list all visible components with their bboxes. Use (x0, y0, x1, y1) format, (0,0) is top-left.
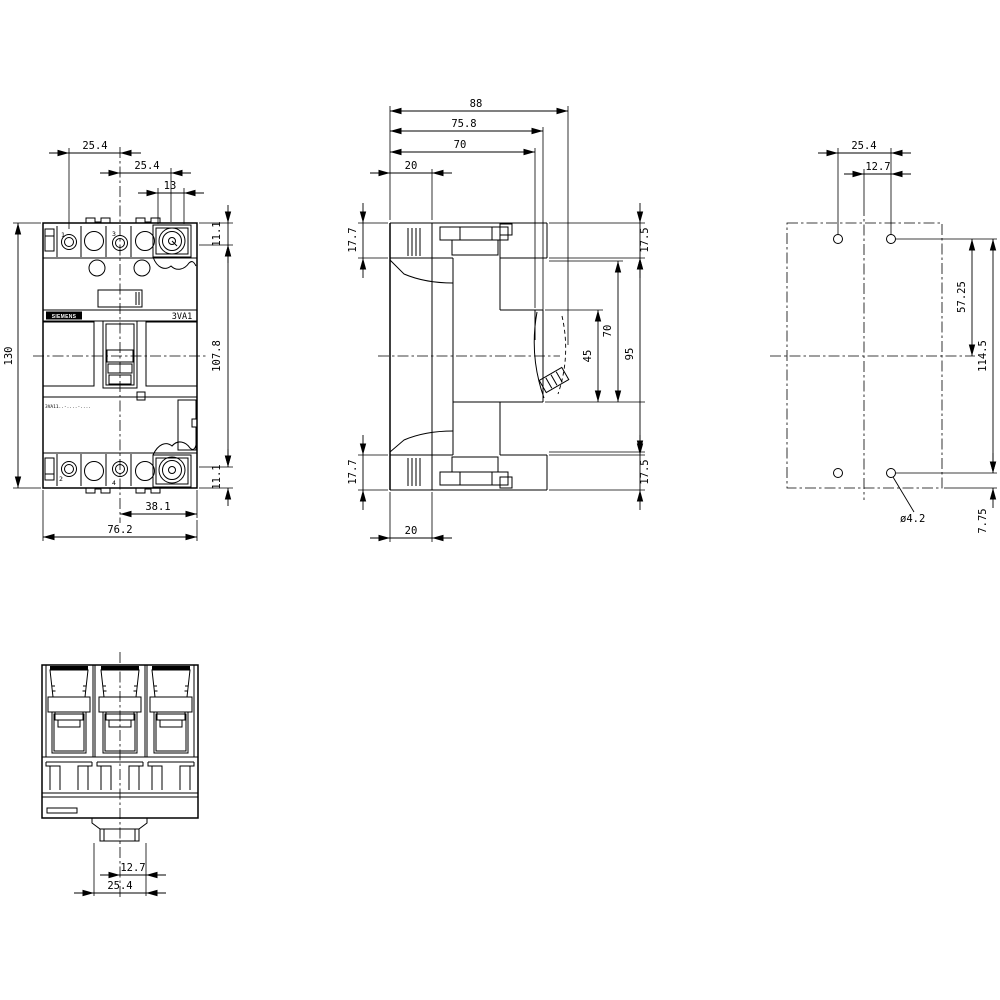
terminal-number-4: 4 (112, 479, 116, 487)
dim-front-total-width: 76.2 (107, 524, 132, 536)
box-terminal-top (153, 225, 196, 269)
box-terminal-bottom (153, 442, 196, 487)
dim-side-front-step-bottom: 17.5 (639, 459, 651, 484)
mounting-foot (92, 818, 147, 841)
dim-drill-hole-pitch-vertical: 114.5 (977, 340, 989, 372)
dim-side-rail-height-bottom: 17.7 (347, 459, 359, 484)
dim-drill-hole-to-edge: 7.75 (977, 508, 989, 533)
front-view-dimensions: 25.4 25.4 13 11.1 130 107.8 11. (3, 140, 233, 541)
clamp-hole (85, 462, 104, 481)
dim-side-rail-height-top: 17.7 (347, 227, 359, 252)
dim-front-terminal-height-bottom: 11.1 (211, 464, 223, 489)
dim-bottom-foot-width: 25.4 (107, 880, 132, 892)
dim-front-total-height: 130 (3, 347, 15, 366)
terminal-number-2: 2 (59, 475, 63, 483)
dim-side-base-depth-bottom: 20 (405, 525, 418, 537)
dim-side-handle-window: 45 (582, 350, 594, 363)
clamp-hole (85, 232, 104, 251)
dimensional-drawing: SIEMENS 3VA1 3VA11..-....-.... 1 3 2 4 (0, 0, 1000, 1000)
dim-side-front-body-height: 95 (624, 348, 636, 361)
dim-side-depth-recess: 70 (454, 139, 467, 151)
side-view: 88 75.8 70 20 17.7 17.5 45 (347, 98, 651, 542)
dim-side-base-depth-top: 20 (405, 160, 418, 172)
dim-side-depth-escutcheon: 75.8 (451, 118, 476, 130)
dim-front-cover-height: 107.8 (211, 340, 223, 372)
brand-logo-text: SIEMENS (52, 314, 77, 320)
dim-drill-hole-to-center: 12.7 (865, 161, 890, 173)
mounting-hole (887, 235, 896, 244)
toggle-handle-side (539, 367, 569, 392)
dim-front-terminal-opening: 13 (164, 180, 177, 192)
technical-drawing-page: SIEMENS 3VA1 3VA11..-....-.... 1 3 2 4 (0, 0, 1000, 1000)
drilling-plan-dimensions: 25.4 12.7 57.25 114.5 7.75 ø4.2 (818, 140, 997, 534)
drilling-plan: 25.4 12.7 57.25 114.5 7.75 ø4.2 (770, 140, 997, 534)
terminal-number-1: 1 (61, 231, 65, 239)
dim-drill-hole-diameter: ø4.2 (900, 513, 925, 525)
model-label: 3VA1 (172, 312, 192, 322)
dim-front-terminal-height-top: 11.1 (211, 221, 223, 246)
accessory-cover (178, 400, 196, 450)
dim-front-pole-pitch-3-5: 25.4 (134, 160, 159, 172)
side-view-dimensions: 88 75.8 70 20 17.7 17.5 45 (347, 98, 651, 542)
mounting-hole (834, 469, 843, 478)
terminal-number-3: 3 (112, 230, 116, 238)
type-code-label: 3VA11..-....-.... (45, 404, 91, 410)
clamp-hole (136, 462, 155, 481)
pole-cavity (46, 666, 92, 790)
bottom-view: 12.7 25.4 (42, 652, 198, 900)
dim-bottom-foot-half-width: 12.7 (120, 862, 145, 874)
dim-side-total-depth: 88 (470, 98, 483, 110)
dim-drill-hole-to-centerline: 57.25 (956, 281, 968, 313)
dim-front-center-to-edge: 38.1 (145, 501, 170, 513)
dim-side-front-step-top: 17.5 (639, 227, 651, 252)
mounting-hole (887, 469, 896, 478)
dim-side-escutcheon-span: 70 (602, 325, 614, 338)
front-view: SIEMENS 3VA1 3VA11..-....-.... 1 3 2 4 (3, 140, 233, 541)
mounting-hole (834, 235, 843, 244)
dim-front-pole-pitch-1-3: 25.4 (82, 140, 107, 152)
pole-cavity (148, 666, 194, 790)
terminal-screw-2 (62, 462, 77, 477)
dim-drill-hole-pitch-horizontal: 25.4 (851, 140, 876, 152)
clamp-hole (136, 232, 155, 251)
